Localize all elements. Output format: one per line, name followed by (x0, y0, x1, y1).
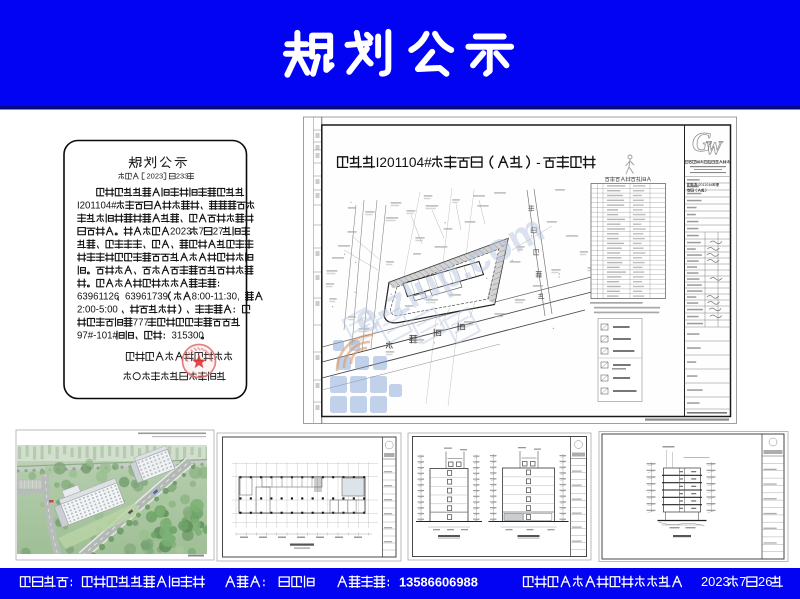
svg-text:7: 7 (739, 574, 746, 589)
svg-text:8:00-11:30,: 8:00-11:30, (192, 292, 240, 303)
svg-text:777: 777 (133, 318, 149, 329)
svg-text:I201104#: I201104# (77, 201, 117, 212)
svg-text:7: 7 (199, 227, 204, 238)
svg-text:I201104#: I201104# (376, 155, 433, 170)
svg-text:27: 27 (213, 227, 224, 238)
svg-text:W: W (705, 138, 723, 159)
svg-text:2023: 2023 (147, 172, 164, 181)
svg-text:97#-101#: 97#-101# (77, 331, 118, 342)
svg-text:26: 26 (758, 574, 772, 589)
svg-text:-: - (536, 155, 541, 170)
svg-text:13586606988: 13586606988 (399, 574, 478, 589)
svg-text:2023: 2023 (170, 227, 191, 238)
svg-text:63961126: 63961126 (77, 292, 119, 303)
svg-text:63961739: 63961739 (125, 292, 168, 303)
svg-text:315300: 315300 (171, 331, 203, 342)
svg-text:2:00-5:00: 2:00-5:00 (77, 305, 118, 316)
svg-text:I201104#: I201104# (698, 183, 713, 187)
svg-text:2023: 2023 (701, 574, 730, 589)
svg-text:233: 233 (176, 172, 189, 181)
